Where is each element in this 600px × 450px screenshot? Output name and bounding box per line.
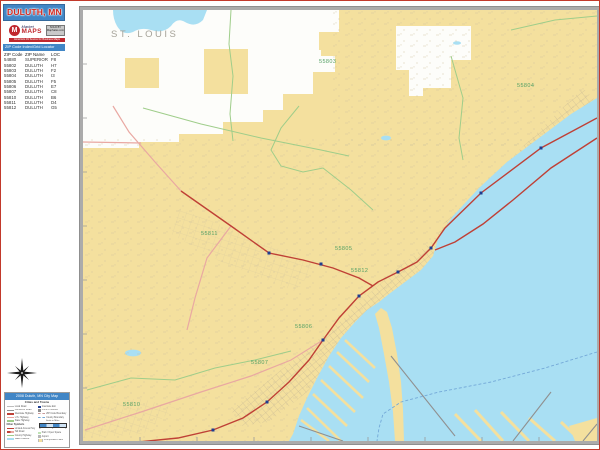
logo-brand-main: MAPS <box>22 29 42 36</box>
legend-left-column: Local Road Connector Road Interstate Hig… <box>7 405 37 442</box>
logo-tagline: America's #1 Source for Business Maps <box>9 38 65 43</box>
zip-label-55807: 55807 <box>251 360 268 366</box>
legend-item: Water Feature <box>7 438 37 442</box>
map-legend: 2008 Duluth, MN City Map Cities and Town… <box>4 392 70 448</box>
road-swatch <box>7 417 14 418</box>
map-poster-page: DULUTH, MN M Market MAPS SOLD BY MapSale… <box>0 0 600 450</box>
road-swatch <box>7 413 14 414</box>
scale-bar: Scale in Miles 0 1 2 <box>38 420 68 430</box>
road-swatch <box>7 420 14 421</box>
duluth-map-graphic: ST. LOUIS 55803 55804 55811 55805 55812 … <box>83 10 597 441</box>
zip-label-55804: 55804 <box>517 83 534 89</box>
zip-label-55803: 55803 <box>319 59 336 65</box>
zip-label-55805: 55805 <box>335 246 352 252</box>
park-swatch <box>38 432 41 435</box>
table-row: 55812DULUTHG5 <box>4 105 65 110</box>
legend-item: Incorporated Place <box>38 439 68 443</box>
boundary-swatch <box>38 413 45 415</box>
legend-right-column: Interstate Exit Point of Interest ZIP Co… <box>38 405 68 442</box>
logo-badge: SOLD BY MapSales.com <box>46 25 65 36</box>
map-canvas: ST. LOUIS 55803 55804 55811 55805 55812 … <box>80 7 600 444</box>
water-swatch <box>7 438 14 440</box>
zip-index-table: ZIP Code ZIP Name LOC 54880SUPERIORF8 55… <box>4 52 65 111</box>
logo-badge-line2: MapSales.com <box>47 30 64 33</box>
marketmaps-logo: M Market MAPS SOLD BY MapSales.com <box>9 23 65 38</box>
zip-label-55811: 55811 <box>201 231 218 237</box>
zip-label-55812: 55812 <box>351 268 368 274</box>
road-swatch <box>7 431 14 432</box>
county-label: ST. LOUIS <box>111 29 178 40</box>
zip-label-55806: 55806 <box>295 324 312 330</box>
road-swatch <box>7 406 14 407</box>
road-swatch <box>7 428 14 430</box>
compass-rose-icon <box>6 357 38 389</box>
page-title: DULUTH, MN <box>3 4 65 21</box>
poi-swatch <box>38 409 41 412</box>
road-swatch <box>7 410 14 411</box>
exit-marker-swatch <box>38 406 41 409</box>
place-swatch <box>38 439 43 443</box>
legend-title: 2008 Duluth, MN City Map <box>5 393 69 400</box>
legend-item: County Boundary <box>38 416 68 420</box>
zip-label-55810: 55810 <box>123 402 140 408</box>
logo-m-icon: M <box>9 25 20 36</box>
zip-index-title: ZIP Code Index/Grid Locator <box>3 44 65 51</box>
road-swatch <box>7 435 14 436</box>
boundary-swatch <box>38 417 45 419</box>
